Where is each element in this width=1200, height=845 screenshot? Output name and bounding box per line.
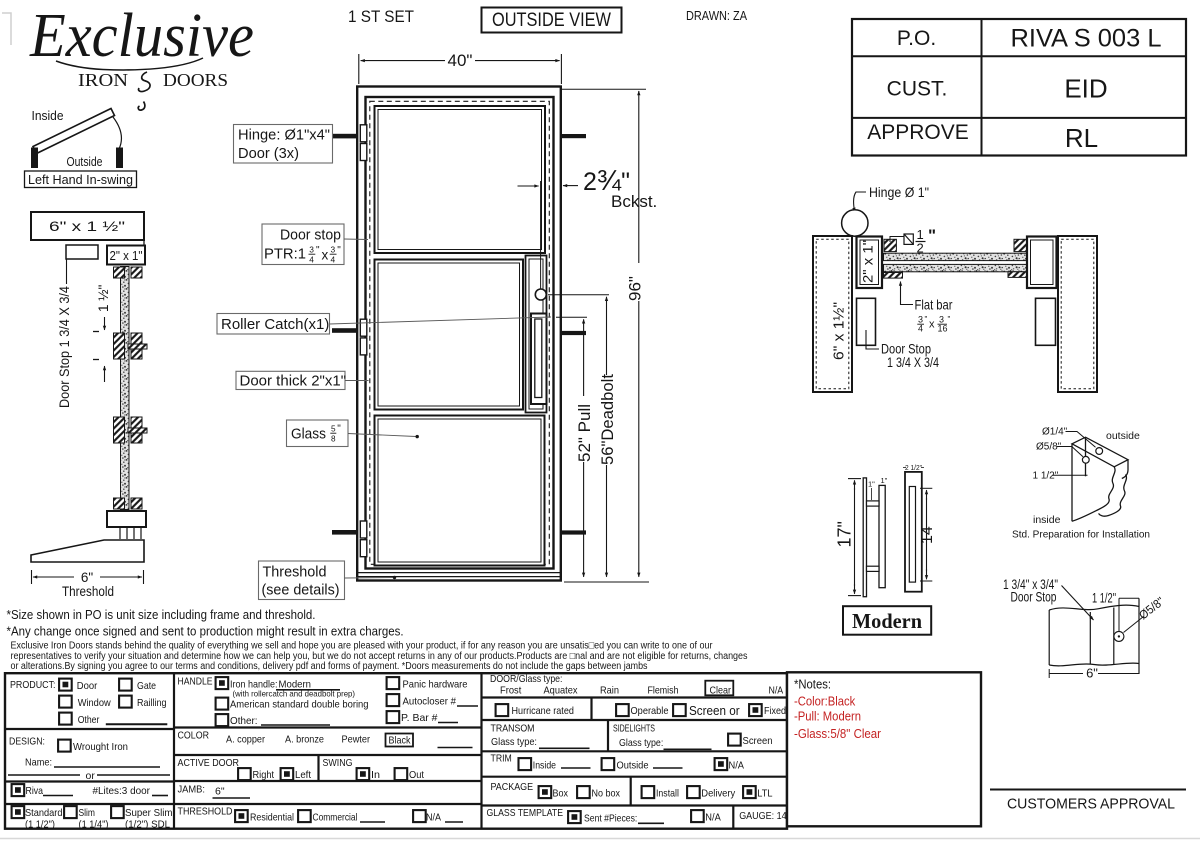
svg-text:": " (948, 315, 951, 324)
svg-text:6" x 1 ½": 6" x 1 ½" (49, 219, 125, 234)
svg-text:*Notes:: *Notes: (794, 678, 831, 692)
svg-text:Door stop: Door stop (280, 227, 341, 244)
svg-text:JAMB:: JAMB: (178, 784, 206, 796)
svg-text:1 1/2": 1 1/2" (1033, 471, 1059, 482)
svg-text:A. copper: A. copper (226, 734, 265, 746)
svg-text:N/A: N/A (426, 812, 441, 824)
svg-text:Flat bar: Flat bar (915, 297, 953, 313)
svg-text:Standard: Standard (25, 807, 63, 819)
svg-text:6" x 1½": 6" x 1½" (831, 302, 848, 360)
svg-text:4: 4 (331, 254, 336, 264)
svg-text:Inside: Inside (32, 108, 64, 123)
svg-text:5: 5 (331, 425, 336, 434)
svg-text:1 ST SET: 1 ST SET (348, 7, 414, 26)
svg-text:Roller Catch(x1): Roller Catch(x1) (221, 316, 329, 333)
svg-text:4: 4 (309, 254, 314, 264)
svg-text:HANDLE: HANDLE (178, 676, 213, 688)
svg-text:Other:: Other: (230, 715, 258, 727)
svg-text:or: or (86, 770, 96, 782)
svg-text:Screen: Screen (743, 735, 773, 747)
svg-text:N/A: N/A (769, 685, 784, 697)
svg-text:1 ½": 1 ½" (96, 284, 111, 312)
svg-text:96": 96" (626, 276, 645, 301)
svg-text:Outside: Outside (67, 154, 103, 169)
svg-text:TRIM: TRIM (491, 753, 512, 765)
svg-text:Super Slim: Super Slim (125, 807, 173, 819)
svg-text:#Lites:3 door: #Lites:3 door (93, 785, 151, 797)
svg-text:(1/2") SDL: (1/2") SDL (125, 819, 170, 831)
svg-text:56"Deadbolt: 56"Deadbolt (598, 374, 617, 465)
svg-text:1": 1" (881, 476, 888, 485)
svg-text:Box: Box (553, 788, 569, 800)
svg-text:SWING: SWING (323, 757, 353, 769)
svg-text:Wrought Iron: Wrought Iron (73, 741, 128, 753)
svg-text:6": 6" (215, 786, 225, 798)
svg-text:ACTIVE DOOR: ACTIVE DOOR (178, 757, 240, 769)
svg-text:Fixed: Fixed (764, 705, 786, 717)
svg-text:Door Stop: Door Stop (1011, 589, 1057, 605)
svg-text:or alterations.By signing you: or alterations.By signing you agree to o… (11, 661, 648, 672)
svg-text:Clear: Clear (710, 685, 732, 697)
svg-text:RL: RL (1065, 123, 1098, 153)
svg-text:DESIGN:: DESIGN: (9, 736, 45, 748)
svg-text:PTR:1: PTR:1 (264, 247, 306, 263)
svg-text:1": 1" (868, 480, 875, 489)
svg-text:Aquatex: Aquatex (544, 685, 579, 697)
svg-text:2 1/2": 2 1/2" (905, 465, 922, 472)
svg-text:PRODUCT:: PRODUCT: (10, 679, 56, 691)
svg-text:Threshold: Threshold (62, 584, 114, 599)
svg-text:Riva: Riva (26, 785, 44, 797)
svg-text:American standard double borin: American standard double boring (230, 699, 369, 711)
svg-text:": " (928, 226, 936, 245)
svg-text:outside: outside (1106, 430, 1140, 442)
svg-text:(see details): (see details) (262, 582, 340, 599)
svg-text:x: x (322, 248, 329, 263)
svg-text:Gate: Gate (137, 680, 156, 692)
svg-text:SIDELIGHTS: SIDELIGHTS (613, 723, 655, 735)
svg-text:Glass: Glass (291, 427, 326, 443)
svg-text:": " (925, 315, 928, 324)
svg-text:Inside: Inside (533, 760, 556, 772)
svg-text:EID: EID (1064, 74, 1107, 104)
svg-text:Railling: Railling (137, 697, 167, 709)
svg-text:APPROVE: APPROVE (867, 121, 969, 144)
svg-text:*Size shown in PO is unit size: *Size shown in PO is unit size including… (7, 608, 316, 622)
svg-text:P.O.: P.O. (897, 27, 936, 50)
svg-text:Operable: Operable (631, 705, 669, 717)
svg-text:6": 6" (81, 570, 94, 585)
svg-text:CUST.: CUST. (887, 78, 948, 101)
svg-text:Delivery: Delivery (701, 788, 736, 800)
svg-text:IRON: IRON (78, 70, 128, 90)
svg-text:1 3/4 X 3/4: 1 3/4 X 3/4 (887, 354, 939, 370)
svg-text:LTL: LTL (757, 788, 772, 800)
svg-text:": " (316, 245, 320, 256)
svg-text:(with rollercatch and deadbolt: (with rollercatch and deadbolt prep) (233, 689, 356, 699)
svg-text:2" x 1": 2" x 1" (110, 248, 143, 263)
svg-text:17": 17" (835, 521, 855, 547)
svg-text:Ø1/4": Ø1/4" (1042, 427, 1068, 438)
svg-text:Threshold: Threshold (263, 564, 327, 581)
svg-text:": " (337, 424, 341, 435)
svg-text:P. Bar #: P. Bar # (401, 712, 438, 724)
svg-text:Glass type:: Glass type: (619, 737, 663, 749)
svg-text:8: 8 (331, 434, 336, 443)
svg-text:Door thick 2"x1": Door thick 2"x1" (240, 372, 347, 389)
svg-text:OUTSIDE VIEW: OUTSIDE VIEW (492, 10, 611, 31)
svg-text:(1 1/2"): (1 1/2") (25, 819, 55, 831)
svg-text:Sent #Pieces:: Sent #Pieces: (584, 813, 637, 825)
svg-text:DOORS: DOORS (163, 70, 228, 90)
svg-text:Screen or: Screen or (689, 703, 740, 718)
svg-text:RIVA S 003 L: RIVA S 003 L (1011, 25, 1162, 53)
svg-text:GLASS TEMPLATE: GLASS TEMPLATE (487, 807, 564, 819)
svg-text:Left: Left (295, 769, 311, 781)
svg-text:DOOR/Glass type:: DOOR/Glass type: (490, 673, 563, 685)
svg-text:DRAWN: ZA: DRAWN: ZA (686, 8, 747, 23)
svg-text:2" x 1": 2" x 1" (860, 240, 876, 283)
svg-text:Door (3x): Door (3x) (238, 145, 299, 162)
svg-text:Glass type:: Glass type: (491, 736, 537, 748)
svg-text:6": 6" (1086, 666, 1098, 681)
svg-text:Black: Black (389, 735, 412, 747)
svg-text:Panic hardware: Panic hardware (403, 679, 468, 691)
svg-text:In: In (371, 769, 380, 781)
svg-text:A. bronze: A. bronze (285, 734, 324, 746)
svg-text:Door: Door (77, 680, 98, 692)
svg-text:Residential: Residential (250, 812, 294, 824)
svg-text:Pewter: Pewter (342, 734, 371, 746)
svg-text:Commercial: Commercial (313, 812, 358, 824)
svg-text:Bckst.: Bckst. (611, 192, 657, 211)
svg-text:CUSTOMERS APPROVAL: CUSTOMERS APPROVAL (1007, 796, 1175, 813)
svg-text:Window: Window (78, 697, 111, 709)
svg-text:COLOR: COLOR (178, 730, 210, 742)
svg-text:1 1/2": 1 1/2" (1092, 590, 1116, 606)
svg-text:N/A: N/A (705, 812, 721, 824)
svg-text:Other: Other (78, 714, 100, 726)
svg-text:Modern: Modern (852, 609, 922, 633)
svg-text:Door Stop 1 3/4 X 3/4: Door Stop 1 3/4 X 3/4 (57, 286, 72, 408)
svg-text:-Glass:5/8" Clear: -Glass:5/8" Clear (794, 727, 881, 741)
svg-text:THRESHOLD: THRESHOLD (178, 806, 233, 818)
svg-text:-Pull: Modern: -Pull: Modern (794, 710, 861, 724)
svg-text:14: 14 (919, 526, 936, 544)
svg-text:(1 1/4"): (1 1/4") (79, 819, 109, 831)
svg-text:Left Hand In-swing: Left Hand In-swing (28, 172, 133, 187)
svg-text:TRANSOM: TRANSOM (491, 723, 535, 735)
svg-text:PACKAGE: PACKAGE (491, 781, 534, 793)
svg-text:Hurricane rated: Hurricane rated (512, 705, 575, 717)
svg-text:Right: Right (253, 769, 275, 781)
svg-text:52" Pull: 52" Pull (575, 404, 594, 462)
svg-text:*Any change once signed and se: *Any change once signed and sent to prod… (7, 625, 404, 639)
svg-text:": " (337, 245, 341, 256)
svg-text:inside: inside (1033, 514, 1061, 526)
svg-text:4: 4 (918, 324, 923, 334)
svg-text:x: x (929, 319, 935, 331)
svg-text:Frost: Frost (500, 685, 521, 697)
svg-text:Install: Install (656, 788, 679, 800)
svg-text:N/A: N/A (729, 760, 745, 772)
svg-text:GAUGE: 14: GAUGE: 14 (739, 810, 787, 822)
svg-text:16: 16 (938, 324, 948, 334)
svg-text:Outside: Outside (617, 760, 649, 772)
svg-text:40": 40" (448, 51, 473, 70)
svg-text:Std. Preparation for Installat: Std. Preparation for Installation (1012, 529, 1150, 541)
svg-text:No box: No box (592, 788, 621, 800)
svg-text:Rain: Rain (600, 685, 619, 697)
svg-text:3: 3 (331, 245, 336, 255)
svg-text:Autocloser #: Autocloser # (403, 696, 457, 708)
svg-text:Out: Out (409, 769, 424, 781)
svg-text:Hinge Ø 1": Hinge Ø 1" (869, 184, 929, 200)
svg-text:Flemish: Flemish (648, 685, 679, 697)
svg-text:3: 3 (309, 245, 314, 255)
svg-text:Name:: Name: (25, 757, 52, 769)
svg-text:Hinge: Ø1"x4": Hinge: Ø1"x4" (238, 127, 330, 144)
svg-text:Slim: Slim (79, 807, 96, 819)
svg-text:Exclusive: Exclusive (29, 2, 254, 70)
svg-text:-Color:Black: -Color:Black (794, 695, 856, 709)
